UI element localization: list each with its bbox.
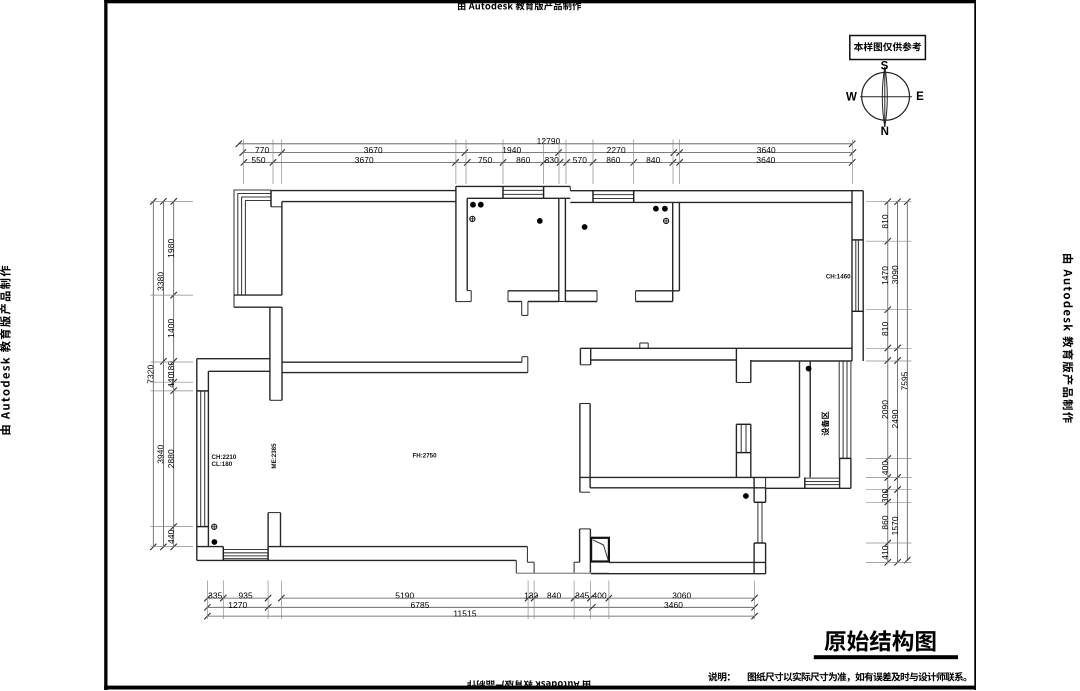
svg-text:3640: 3640 [756,155,775,165]
svg-text:400: 400 [880,461,890,476]
svg-text:FH:2750: FH:2750 [412,453,437,460]
svg-text:840: 840 [646,155,661,165]
svg-text:CH:1460: CH:1460 [826,274,851,281]
svg-text:2090: 2090 [880,400,890,419]
svg-text:CH:2210: CH:2210 [212,454,237,461]
svg-text:1470: 1470 [880,266,890,285]
svg-text:410: 410 [880,545,890,560]
svg-text:7595: 7595 [900,371,910,390]
svg-text:335: 335 [208,591,223,601]
svg-text:12790: 12790 [537,136,561,146]
svg-text:3380: 3380 [156,272,166,291]
svg-text:750: 750 [478,155,493,165]
svg-text:3640: 3640 [757,145,776,155]
svg-text:180: 180 [166,361,176,376]
svg-text:860: 860 [516,155,531,165]
svg-text:2270: 2270 [607,145,626,155]
svg-text:330: 330 [545,155,560,165]
svg-text:2490: 2490 [890,409,900,428]
svg-text:1940: 1940 [502,145,521,155]
svg-text:300: 300 [880,488,890,503]
svg-text:770: 770 [255,145,270,155]
svg-text:810: 810 [880,321,890,336]
svg-text:860: 860 [880,515,890,530]
svg-text:1400: 1400 [166,319,176,338]
svg-text:440: 440 [166,529,176,544]
svg-text:860: 860 [606,155,621,165]
svg-text:810: 810 [880,214,890,229]
svg-text:1980: 1980 [166,239,176,258]
svg-text:E: E [916,91,924,103]
svg-text:7320: 7320 [146,364,156,383]
svg-text:CL:180: CL:180 [212,461,233,468]
svg-text:840: 840 [547,591,562,601]
svg-text:1570: 1570 [890,516,900,535]
svg-text:400: 400 [593,591,608,601]
svg-text:11515: 11515 [453,609,476,619]
svg-text:570: 570 [573,155,588,165]
svg-text:130: 130 [524,591,539,601]
svg-text:W: W [846,92,857,104]
svg-text:3460: 3460 [664,600,683,610]
svg-text:S: S [881,60,889,72]
svg-text:1270: 1270 [228,600,247,610]
svg-text:550: 550 [251,155,266,165]
svg-text:3670: 3670 [364,145,383,155]
svg-text:6785: 6785 [410,600,429,610]
svg-text:ME:2385: ME:2385 [271,443,278,469]
svg-text:3090: 3090 [890,265,900,284]
svg-text:2880: 2880 [166,449,176,468]
svg-text:N: N [881,126,889,138]
svg-text:3940: 3940 [156,444,166,463]
svg-text:3670: 3670 [355,155,374,165]
svg-text:345: 345 [575,591,590,601]
